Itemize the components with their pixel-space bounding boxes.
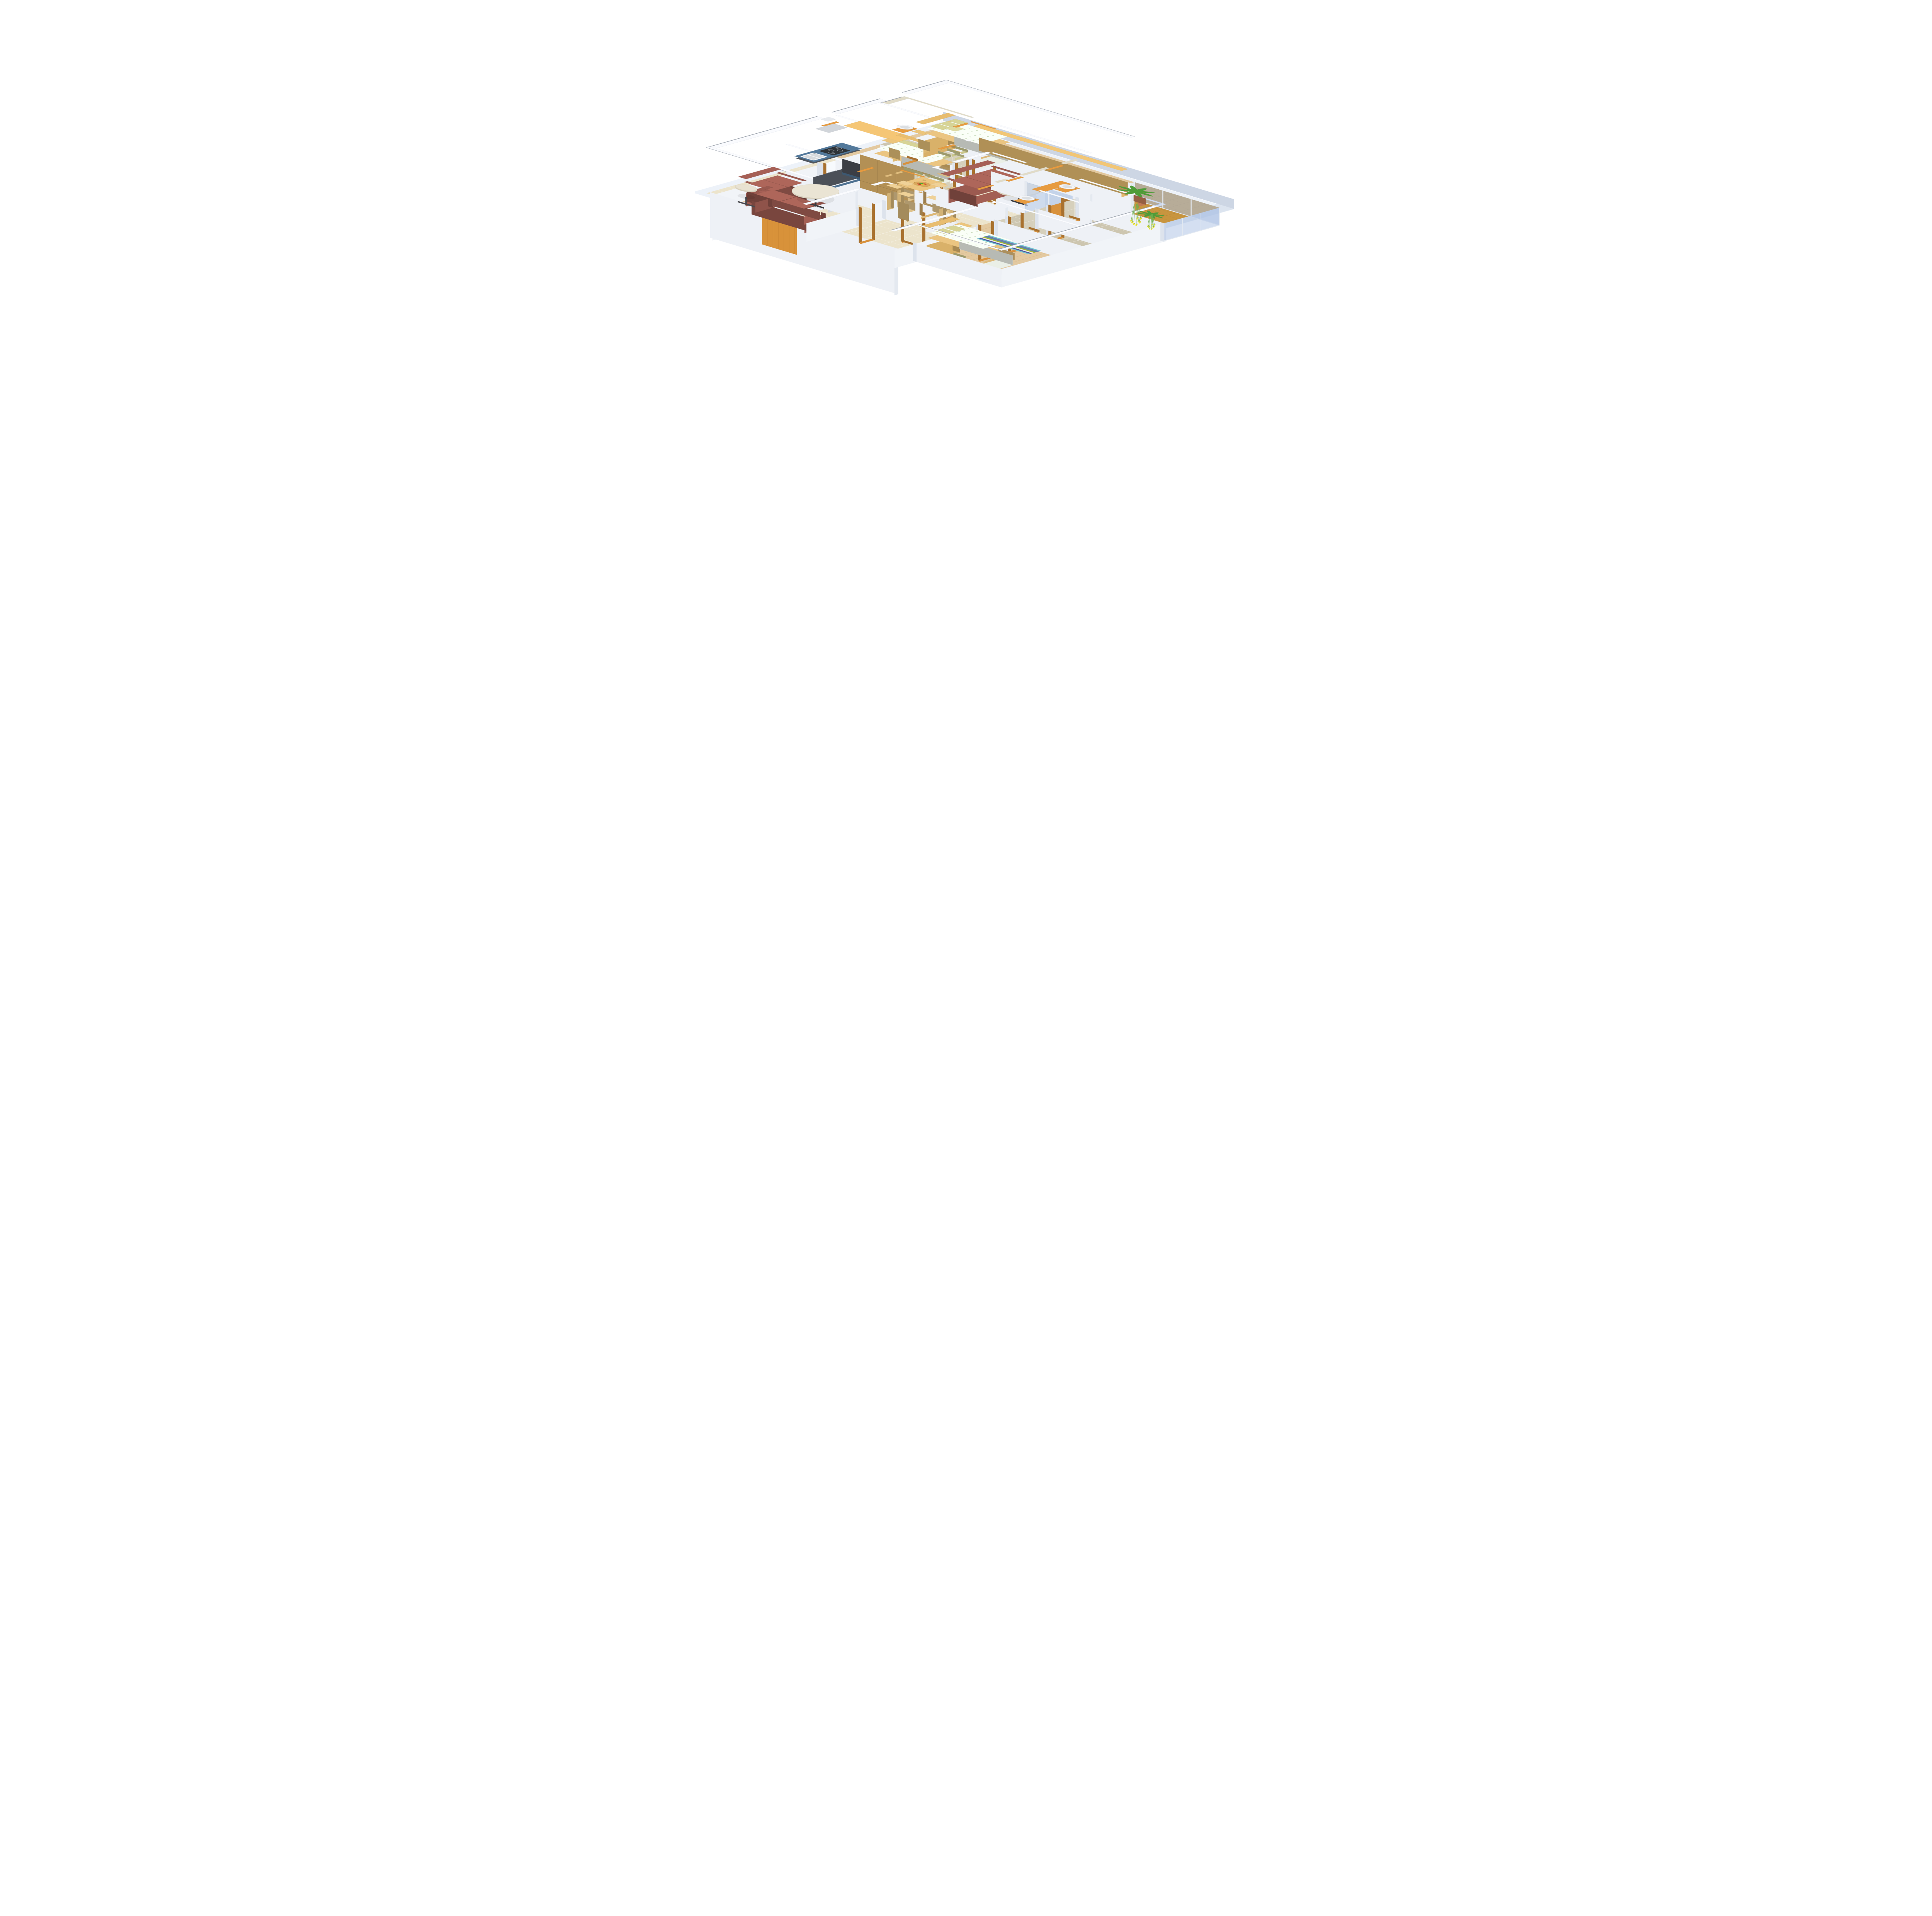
floor-plan-stage [695,0,1237,384]
apartment-3d-floor-plan [695,0,1237,384]
